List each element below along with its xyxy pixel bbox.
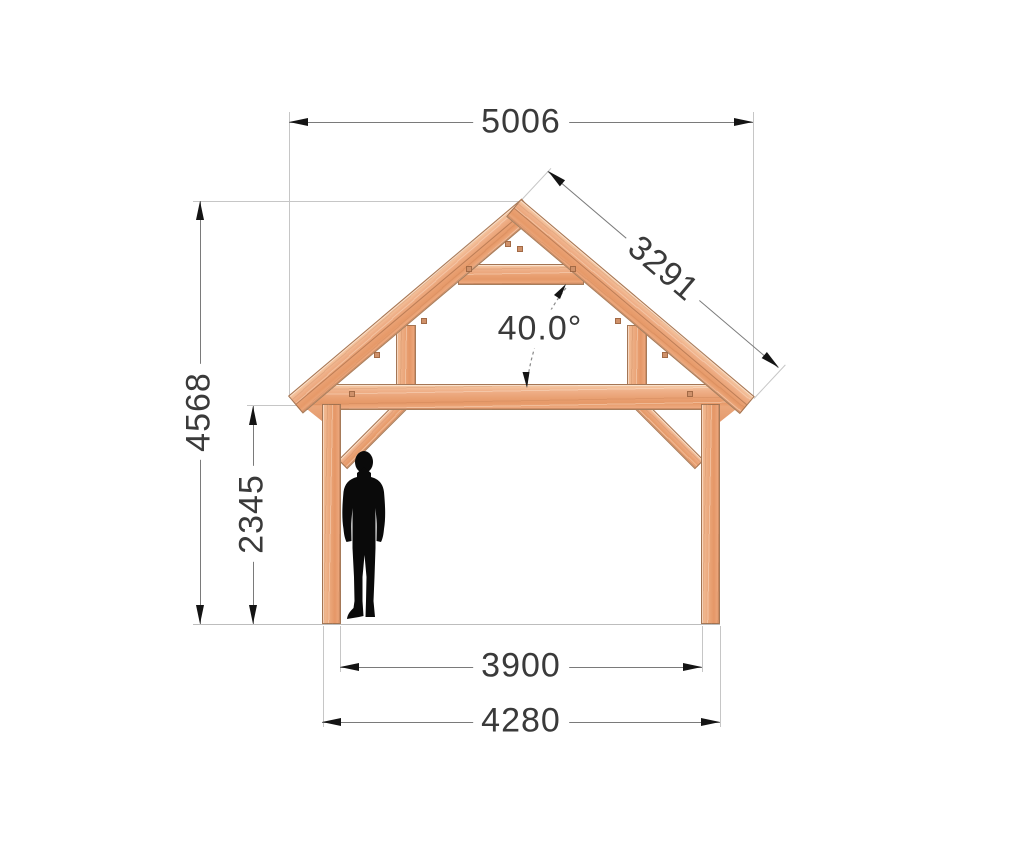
extension-line-outer-span-right [720,626,721,727]
right-queen-stud [627,325,647,385]
peg-beam-right [687,391,693,397]
extension-line-roof-right [753,112,754,398]
arrow-outer-span-right [701,718,720,726]
dimension-total-width: 5006 [473,103,569,142]
arrow-total-width-right [734,118,753,126]
peg-ridge-right [517,246,523,252]
extension-line-slope-eave [754,365,786,399]
arrow-inner-span-right [683,663,702,671]
arrow-total-width-left [289,118,308,126]
dimension-inner-span: 3900 [473,647,569,686]
dimension-total-height: 4568 [180,364,219,460]
person-silhouette [335,451,395,625]
drawing-canvas: 5006 3291 4568 2345 40.0° 3900 4280 [0,0,1024,853]
arrow-rafter-length-end [762,352,782,370]
dimension-eave-height: 2345 [233,466,272,562]
peg-beam-left [349,391,355,397]
extension-line-roof-left [289,112,290,398]
arrow-eave-height-bottom [249,605,257,624]
arrow-total-height-top [196,201,204,220]
ground-line [193,624,720,625]
peg-ridge-left [505,241,511,247]
arrow-total-height-bottom [196,605,204,624]
dimension-roof-angle: 40.0° [494,310,587,349]
right-post [701,404,720,624]
arrow-outer-span-left [322,718,341,726]
extension-line-outer-span-left [323,626,324,727]
arrow-eave-height-top [249,406,257,425]
left-queen-stud [396,325,416,385]
peg-rafter-right [615,318,621,324]
peg-rafter-low-left [374,352,380,358]
dimension-outer-span: 4280 [473,702,569,741]
peg-rafter-left [421,318,427,324]
right-knee-brace [635,400,704,469]
arrow-rafter-length-start [545,168,565,186]
peg-collar-left [466,266,472,272]
extension-line-ridge-height [193,201,521,202]
peg-rafter-low-right [662,352,668,358]
extension-line-inner-span-right [702,626,703,672]
arrow-inner-span-left [340,663,359,671]
